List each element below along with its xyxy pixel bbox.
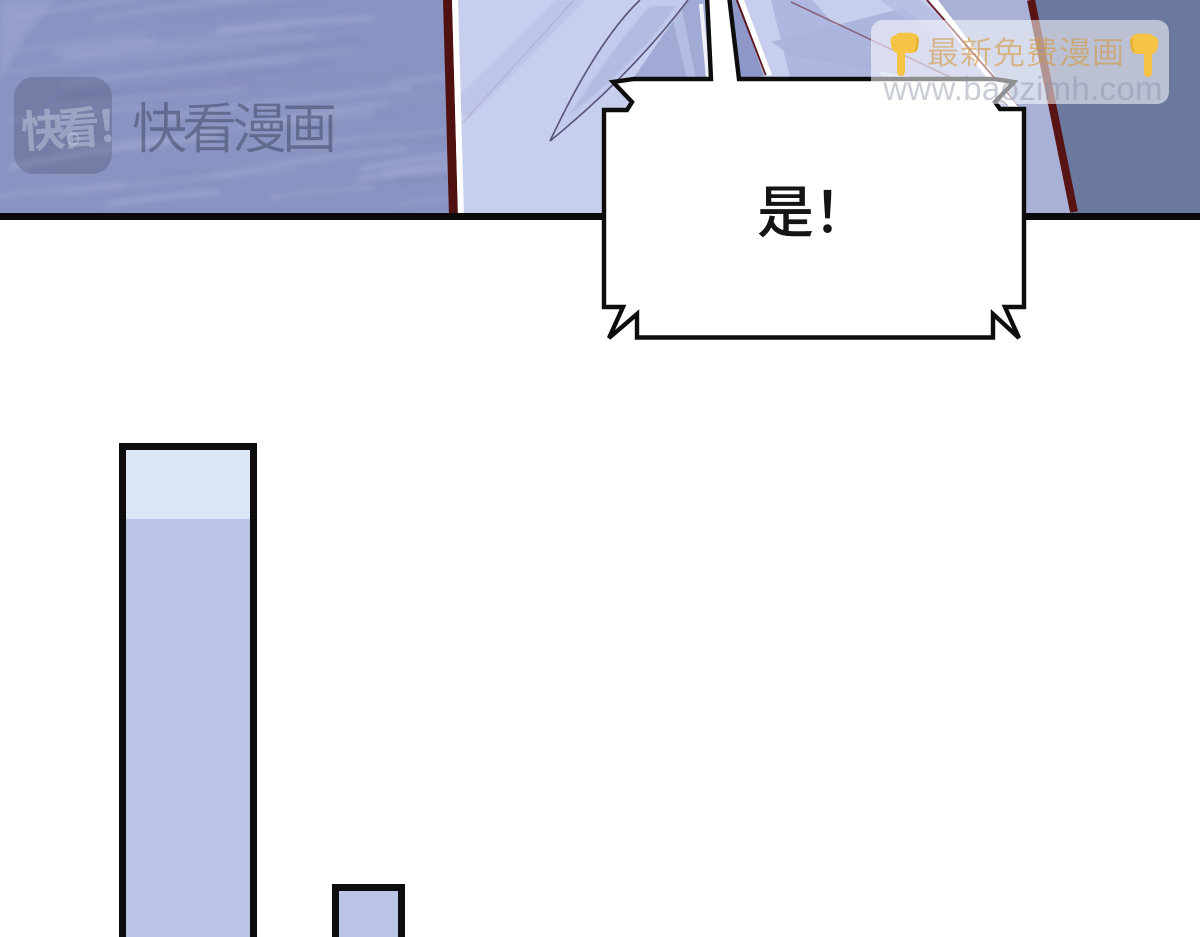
svg-text:www.baozimh.com: www.baozimh.com (882, 70, 1163, 107)
